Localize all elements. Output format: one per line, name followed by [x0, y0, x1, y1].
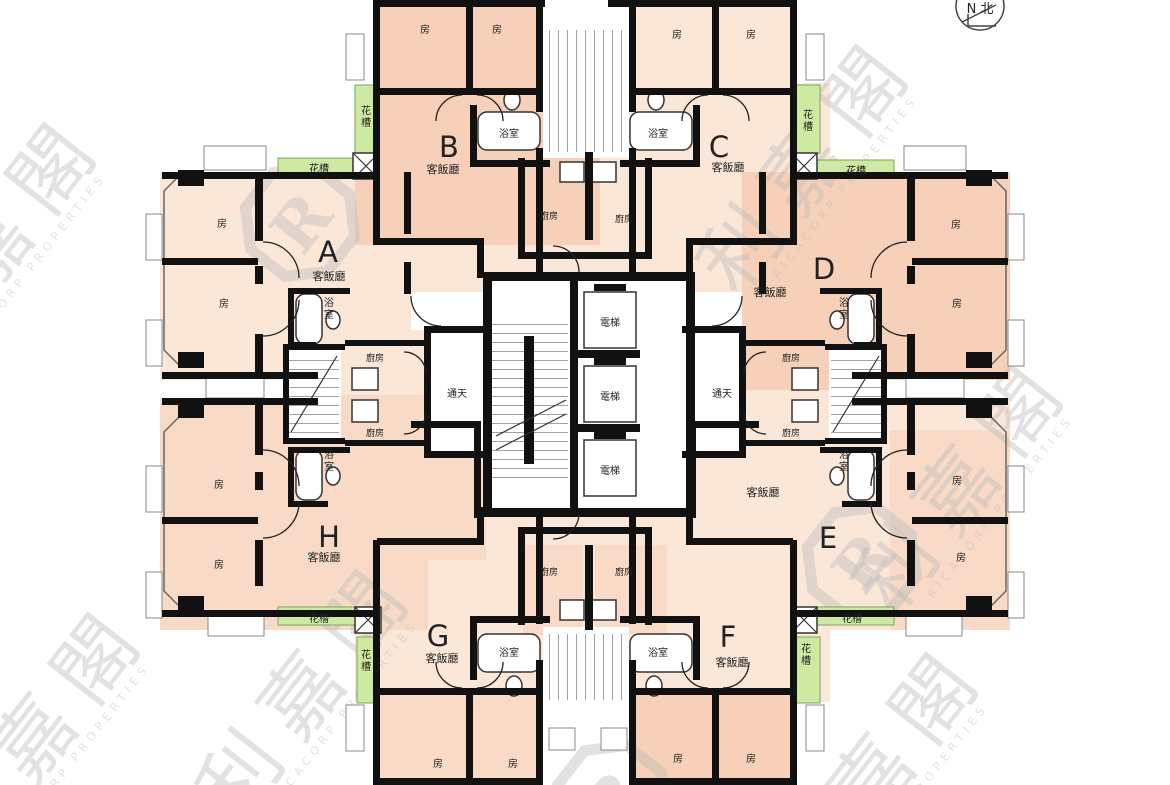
unit-h-planter: 花槽 [309, 612, 329, 625]
unit-f-room-2: 房 [746, 752, 756, 765]
unit-e-room-2: 房 [956, 551, 966, 564]
elevator-cars [584, 284, 636, 496]
unit-d-living-label: 客飯廳 [754, 285, 787, 299]
top-stair-treads [545, 30, 627, 152]
bathtub [848, 450, 874, 500]
unit-c-living-label: 客飯廳 [712, 160, 745, 174]
unit-c-room-2: 房 [746, 28, 756, 41]
bathtub [296, 450, 322, 500]
unit-f-bath: 浴室 [648, 646, 668, 659]
unit-e-living-label: 客飯廳 [747, 485, 780, 499]
sink [792, 368, 818, 390]
elevator-1: 電梯 [600, 316, 620, 329]
sink [352, 368, 378, 390]
bathtub [848, 294, 874, 344]
kitchen-c: 廚房 [615, 213, 633, 225]
unit-g-planter: 花槽 [361, 648, 371, 673]
sink [352, 400, 378, 422]
sink [560, 600, 584, 620]
unit-b-living-label: 客飯廳 [427, 162, 460, 176]
unit-h-living-label: 客飯廳 [308, 550, 341, 564]
unit-g-letter: G [427, 619, 449, 653]
sink [592, 600, 616, 620]
unit-h-room-1: 房 [214, 478, 224, 491]
elevator-3: 電梯 [600, 464, 620, 477]
unit-d-room-1: 房 [951, 218, 961, 231]
unit-b-room-2: 房 [492, 23, 502, 36]
unit-b-room-1: 房 [420, 23, 430, 36]
unit-g-bath: 浴室 [499, 646, 519, 659]
unit-a-room-1: 房 [217, 217, 227, 230]
unit-f-living-label: 客飯廳 [716, 655, 749, 669]
floor-plan-page: 利嘉閣 RICACORP PROPERTIES 利嘉閣 RICACORP PRO… [0, 0, 1170, 785]
floor-plan-drawing: 利嘉閣 RICACORP PROPERTIES 利嘉閣 RICACORP PRO… [0, 0, 1170, 785]
sink [592, 162, 616, 182]
unit-f-letter: F [720, 620, 737, 654]
kitchen-a: 廚房 [366, 352, 384, 364]
unit-a-letter: A [318, 235, 338, 269]
unit-e-planter: 花槽 [842, 612, 862, 625]
unit-d-letter: D [813, 252, 835, 286]
unit-b-planter: 花槽 [361, 104, 371, 129]
unit-d-planter: 花槽 [846, 164, 866, 177]
elevator-2: 電梯 [600, 390, 620, 403]
kitchen-b: 廚房 [540, 210, 558, 222]
skywell-left: 通天 [447, 388, 467, 400]
unit-e-room-1: 房 [952, 474, 962, 487]
bathtub [296, 294, 322, 344]
kitchen-e: 廚房 [782, 427, 800, 439]
unit-b-letter: B [439, 130, 459, 164]
sink [560, 162, 584, 182]
skywell-right: 通天 [712, 388, 732, 400]
unit-c-room-1: 房 [672, 28, 682, 41]
unit-c-planter: 花槽 [803, 108, 813, 133]
unit-g-room-2: 房 [508, 757, 518, 770]
kitchen-d: 廚房 [782, 352, 800, 364]
unit-f-planter: 花槽 [801, 642, 811, 667]
unit-g-room-1: 房 [433, 757, 443, 770]
unit-f-room-1: 房 [673, 752, 683, 765]
kitchen-h: 廚房 [366, 427, 384, 439]
watermark-text: 利嘉閣 RICACORP PROPERTIES [0, 94, 128, 390]
unit-a-planter: 花槽 [309, 162, 329, 175]
unit-e-letter: E [819, 521, 837, 555]
bottom-stair-treads [545, 634, 627, 700]
sink [792, 400, 818, 422]
north-label: N 北 [967, 2, 994, 17]
unit-h-letter: H [318, 520, 340, 554]
unit-a-living-label: 客飯廳 [313, 269, 346, 283]
unit-c-bath: 浴室 [648, 127, 668, 140]
kitchen-g: 廚房 [540, 566, 558, 578]
watermark-cn: 利嘉閣 [0, 94, 125, 388]
unit-h-room-2: 房 [214, 558, 224, 571]
unit-c-letter: C [709, 130, 729, 164]
kitchen-f: 廚房 [615, 566, 633, 578]
unit-g-living-label: 客飯廳 [426, 651, 459, 665]
unit-a-room-2: 房 [219, 297, 229, 310]
unit-d-room-2: 房 [952, 297, 962, 310]
unit-b-bath: 浴室 [499, 127, 519, 140]
